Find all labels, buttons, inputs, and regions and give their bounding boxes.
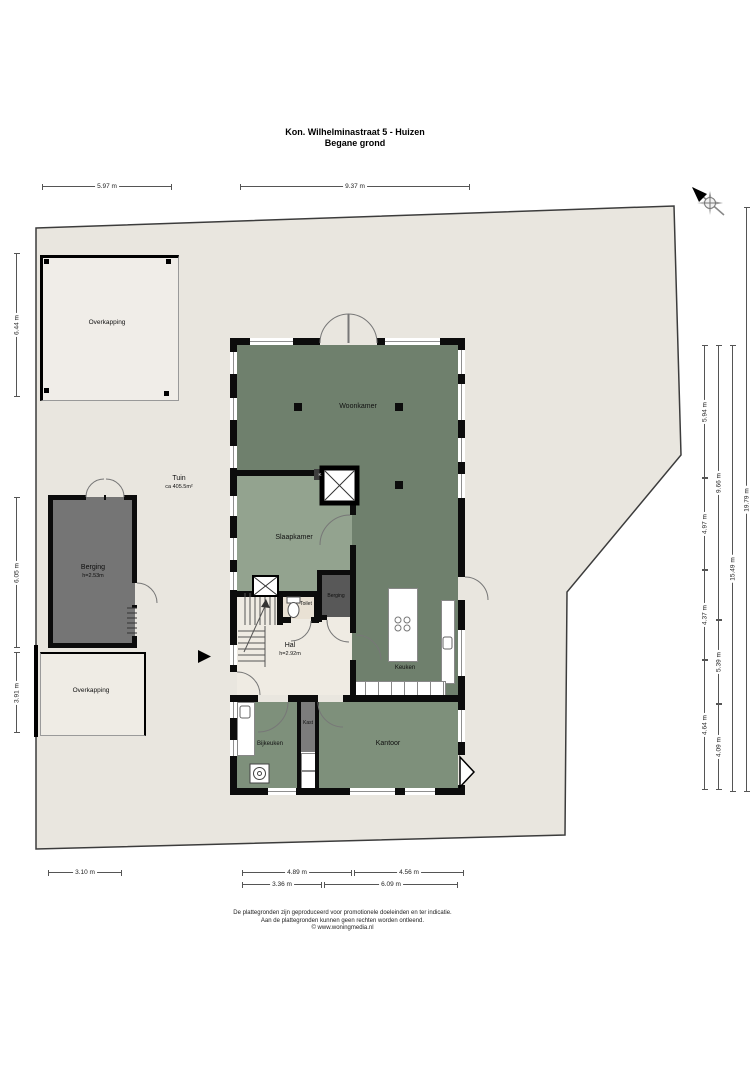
room-label-keuken: Keuken bbox=[395, 664, 415, 672]
dimension-label: 15.49 m bbox=[730, 555, 737, 583]
berging-name: Berging bbox=[81, 564, 105, 572]
window bbox=[230, 398, 237, 420]
dimension-label: 4.56 m bbox=[397, 869, 421, 876]
window bbox=[385, 338, 440, 345]
window bbox=[230, 645, 237, 665]
title-address: Kon. Wilhelminastraat 5 - Huizen bbox=[0, 127, 710, 138]
room-label-kast: Kast bbox=[303, 720, 313, 726]
dimension-line: 3.10 m bbox=[48, 872, 122, 873]
window bbox=[230, 446, 237, 468]
dimension-line: 4.09 m bbox=[718, 704, 719, 790]
dimension-label: 4.89 m bbox=[285, 869, 309, 876]
window bbox=[350, 788, 395, 795]
dimension-line: 4.64 m bbox=[704, 660, 705, 790]
bijkeuken-counter bbox=[237, 702, 255, 756]
window bbox=[458, 710, 465, 742]
dimension-line: 6.05 m bbox=[16, 497, 17, 648]
dimension-line: 4.97 m bbox=[704, 478, 705, 570]
room-label-slaapkamer: Slaapkamer bbox=[275, 534, 312, 542]
dimension-label: 4.09 m bbox=[716, 735, 723, 759]
room-label-berging-binnen: Berging bbox=[327, 593, 344, 599]
window bbox=[458, 438, 465, 462]
window bbox=[458, 350, 465, 374]
dimension-label: 3.10 m bbox=[73, 869, 97, 876]
window bbox=[458, 630, 465, 676]
dimension-line: 4.37 m bbox=[704, 570, 705, 660]
room-label-woonkamer: Woonkamer bbox=[339, 403, 377, 411]
room-label-kantoor: Kantoor bbox=[376, 740, 401, 748]
room-label-overkapping-bottom: Overkapping bbox=[73, 687, 110, 695]
post bbox=[164, 391, 169, 396]
dimension-label: 5.97 m bbox=[95, 183, 119, 190]
page-title: Kon. Wilhelminastraat 5 - Huizen Begane … bbox=[0, 127, 710, 149]
post bbox=[44, 388, 49, 393]
tuin-name: Tuin bbox=[165, 475, 193, 483]
dimension-line: 15.49 m bbox=[732, 345, 733, 792]
dimension-line: 9.37 m bbox=[240, 186, 470, 187]
window bbox=[230, 702, 237, 718]
window bbox=[458, 474, 465, 498]
column bbox=[294, 403, 302, 411]
room-label-toilet: Toilet bbox=[300, 601, 312, 607]
dimension-line: 5.94 m bbox=[704, 345, 705, 478]
dimension-label: 6.44 m bbox=[14, 313, 21, 337]
meterkast-label: K bbox=[318, 472, 321, 478]
dimension-line: 4.56 m bbox=[354, 872, 464, 873]
dimension-line: 9.66 m bbox=[718, 345, 719, 620]
room-label-berging-outside: Berging h=2.53m bbox=[81, 564, 105, 580]
room-label-overkapping-top: Overkapping bbox=[89, 319, 126, 327]
window bbox=[230, 572, 237, 590]
column bbox=[395, 481, 403, 489]
window bbox=[405, 788, 435, 795]
entrance-arrow-icon bbox=[198, 650, 211, 663]
room-label-tuin: Tuin ca 405.5m² bbox=[165, 475, 193, 491]
window bbox=[458, 384, 465, 420]
dimension-label: 9.37 m bbox=[343, 183, 367, 190]
kast-appliance bbox=[301, 753, 316, 771]
window bbox=[230, 538, 237, 560]
door-wedge-icon bbox=[460, 757, 474, 787]
hal-name: Hal bbox=[279, 642, 301, 650]
dimension-label: 9.66 m bbox=[716, 471, 723, 495]
dimension-label: 6.09 m bbox=[379, 881, 403, 888]
room-label-hal: Hal h=2.92m bbox=[279, 642, 301, 658]
tuin-area: ca 405.5m² bbox=[165, 483, 193, 491]
dimension-line: 5.97 m bbox=[42, 186, 172, 187]
dimension-label: 19.79 m bbox=[744, 486, 751, 514]
disclaimer-line1: De plattegronden zijn geproduceerd voor … bbox=[0, 910, 685, 918]
window bbox=[250, 338, 293, 345]
dimension-label: 3.91 m bbox=[14, 681, 21, 705]
overkapping-top bbox=[40, 255, 179, 401]
dimension-line: 6.09 m bbox=[324, 884, 458, 885]
dimension-label: 4.97 m bbox=[702, 512, 709, 536]
dimension-line: 3.91 m bbox=[16, 652, 17, 733]
dimension-line: 5.39 m bbox=[718, 620, 719, 704]
berging-height: h=2.53m bbox=[81, 572, 105, 580]
dimension-label: 4.64 m bbox=[702, 713, 709, 737]
kitchen-counter bbox=[441, 600, 455, 684]
kitchen-island bbox=[388, 588, 418, 662]
title-floor: Begane grond bbox=[0, 138, 710, 149]
dimension-label: 5.94 m bbox=[702, 400, 709, 424]
dimension-label: 5.39 m bbox=[716, 650, 723, 674]
kast-appliance bbox=[301, 771, 316, 789]
post bbox=[166, 259, 171, 264]
dimension-label: 4.37 m bbox=[702, 603, 709, 627]
disclaimer: De plattegronden zijn geproduceerd voor … bbox=[0, 910, 685, 933]
window bbox=[230, 496, 237, 516]
dimension-line: 6.44 m bbox=[16, 253, 17, 397]
north-arrow-icon bbox=[692, 187, 724, 215]
disclaimer-line2: Aan de plattegronden kunnen geen rechten… bbox=[0, 918, 685, 926]
post bbox=[44, 259, 49, 264]
dimension-line: 19.79 m bbox=[746, 207, 747, 792]
window bbox=[230, 740, 237, 756]
room-label-bijkeuken: Bijkeuken bbox=[257, 740, 283, 748]
window bbox=[268, 788, 296, 795]
hal-height: h=2.92m bbox=[279, 650, 301, 658]
floorplan-page: Kon. Wilhelminastraat 5 - Huizen Begane … bbox=[0, 0, 755, 1067]
column bbox=[395, 403, 403, 411]
copyright: © www.woningmedia.nl bbox=[0, 925, 685, 933]
dimension-label: 6.05 m bbox=[14, 561, 21, 585]
dimension-line: 4.89 m bbox=[242, 872, 352, 873]
dimension-line: 3.36 m bbox=[242, 884, 322, 885]
window bbox=[230, 352, 237, 374]
dimension-label: 3.36 m bbox=[270, 881, 294, 888]
